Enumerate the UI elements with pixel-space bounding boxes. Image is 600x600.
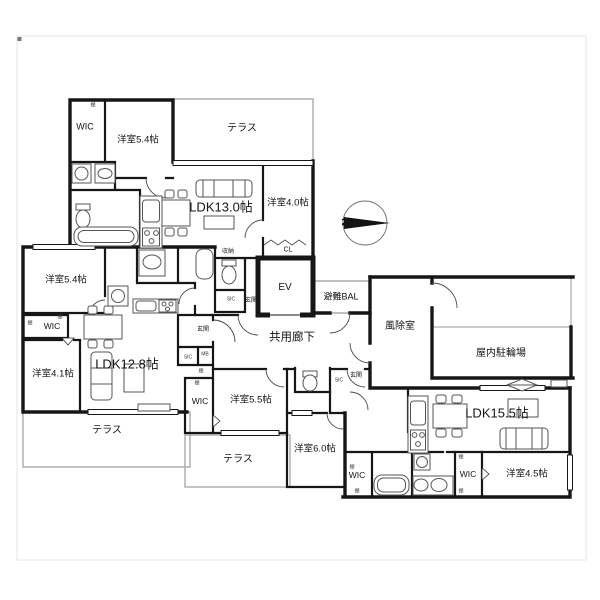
room-label-entry-a: 玄関 <box>245 298 257 304</box>
shelf-mark: 棚 <box>57 316 62 321</box>
toilet-wc <box>303 375 317 391</box>
tv-board-b <box>138 404 170 411</box>
room-label-terrace-c: テラス <box>223 455 253 465</box>
dining-table-b <box>84 315 122 339</box>
room-label-sic-a: SIC <box>227 298 235 303</box>
floor-plan-drawing <box>0 0 600 600</box>
room-label-sic-b: SIC <box>184 356 192 361</box>
shelf-mark: 棚 <box>194 382 199 387</box>
room-label-terrace-a: テラス <box>227 124 257 134</box>
cl-folding-door <box>264 240 306 245</box>
room-label-ldk-155: LDK15.5帖 <box>465 407 529 420</box>
room-label-elevator: EV <box>278 283 291 293</box>
room-label-mail-box: MB <box>201 353 209 358</box>
low-table-a <box>204 216 234 229</box>
room-label-storage-a: 収納 <box>222 249 234 255</box>
bike-area-thin-lines <box>432 277 571 327</box>
shelf-mark: 棚 <box>90 104 95 109</box>
room-label-bike-parking: 屋内駐輪場 <box>476 349 526 359</box>
shelf-mark: 棚 <box>198 370 203 375</box>
room-label-ldk-13: LDK13.0帖 <box>189 201 253 214</box>
room-label-corridor: 共用廊下 <box>269 332 315 344</box>
room-label-wic-a: WIC <box>76 123 94 132</box>
kitchen-sink-b <box>136 301 156 311</box>
frame-mark <box>18 37 22 41</box>
toilet-tank-a <box>76 204 90 210</box>
shelf-mark: 棚 <box>349 466 354 471</box>
shelf-mark: 棚 <box>27 322 32 327</box>
floor-plan: WIC 洋室5.4帖 テラス LDK13.0帖 洋室4.0帖 CL 収納 EV … <box>0 0 600 600</box>
room-label-ldk-128: LDK12.8帖 <box>95 358 159 371</box>
room-label-wic-c: WIC <box>192 397 209 406</box>
kitchen-sink-d <box>411 401 426 425</box>
room-label-wic-d2: WIC <box>349 471 366 480</box>
room-label-entry-b: 玄関 <box>197 327 209 333</box>
room-label-wic-d: WIC <box>460 470 477 479</box>
room-label-bedroom-54-b: 洋室5.4帖 <box>45 275 87 285</box>
compass-north-label: N <box>342 218 353 226</box>
dining-table-d <box>433 404 467 428</box>
sofa-a <box>196 180 252 197</box>
kitchen-sink-a <box>143 200 160 222</box>
dining-table-a <box>162 200 190 226</box>
room-label-evac-balcony: 避難BAL <box>323 293 358 302</box>
sofa-d <box>500 428 548 449</box>
shelf-mark: 棚 <box>458 456 463 461</box>
bathtub-b <box>196 249 213 279</box>
room-label-entry-d: 玄関 <box>350 373 362 379</box>
room-label-bedroom-41: 洋室4.1帖 <box>32 369 74 379</box>
room-label-cl: CL <box>284 247 293 254</box>
toilet-a2 <box>222 266 236 284</box>
room-label-bedroom-54-a: 洋室5.4帖 <box>117 135 159 145</box>
room-label-bedroom-60: 洋室6.0帖 <box>294 444 336 454</box>
room-label-windbreak: 風除室 <box>385 322 415 332</box>
room-label-bedroom-55: 洋室5.5帖 <box>230 395 272 405</box>
entry-step <box>551 380 567 387</box>
room-label-bedroom-45: 洋室4.5帖 <box>506 469 548 479</box>
shelf-mark: 棚 <box>458 490 463 495</box>
toilet-a <box>76 210 90 228</box>
room-label-sic-d: SIC <box>335 379 343 384</box>
room-label-terrace-b: テラス <box>92 426 122 436</box>
shelf-mark: 棚 <box>354 490 359 495</box>
room-label-bedroom-40: 洋室4.0帖 <box>267 198 309 208</box>
room-label-wic-b: WIC <box>44 322 61 331</box>
